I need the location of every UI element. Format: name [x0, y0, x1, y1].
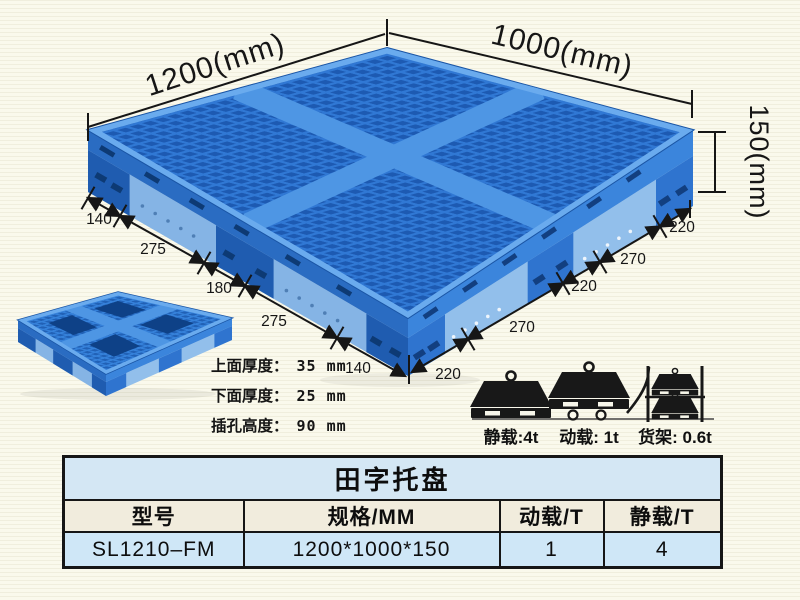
note-top-thickness: 上面厚度：35 mm	[211, 354, 347, 376]
spec-table: 田字托盘 型号 规格/MM 动载/T 静载/T SL1210–FM 1200*1…	[62, 455, 723, 569]
dim-right-5: 220	[669, 219, 695, 236]
spec-table-data-row: SL1210–FM 1200*1000*150 1 4	[64, 532, 722, 568]
note-slot-height-value: 90 mm	[297, 417, 347, 435]
note-bottom-thickness-value: 25 mm	[297, 387, 347, 405]
note-top-thickness-value: 35 mm	[297, 357, 347, 375]
note-slot-height-label: 插孔高度：	[211, 418, 289, 435]
pallet-small-illustration	[18, 292, 232, 400]
trolley-load-label: 动载: 1t	[559, 427, 619, 447]
pallet-spec-sheet: 1200(mm) 1000(mm) 150(mm) 140 275 180 27…	[0, 0, 800, 600]
note-bottom-thickness: 下面厚度：25 mm	[211, 384, 347, 406]
dim-right-3: 220	[571, 278, 597, 295]
spec-table-title-row: 田字托盘	[64, 457, 722, 501]
static-load-label: 静载:4t	[484, 427, 539, 447]
cell-model: SL1210–FM	[64, 532, 244, 568]
dim-height-label: 150(mm)	[744, 104, 774, 219]
dim-left-2: 275	[140, 241, 166, 258]
spec-table-title: 田字托盘	[64, 457, 722, 501]
col-header-model: 型号	[64, 500, 244, 532]
col-header-static-load: 静载/T	[604, 500, 722, 532]
cell-static-load: 4	[604, 532, 722, 568]
dim-left-3: 180	[206, 280, 232, 297]
dim-left-1: 140	[86, 211, 112, 228]
dim-right-2: 270	[509, 319, 535, 336]
rack-load-label: 货架: 0.6t	[638, 427, 712, 447]
note-top-thickness-label: 上面厚度：	[211, 358, 289, 375]
spec-table-header-row: 型号 规格/MM 动载/T 静载/T	[64, 500, 722, 532]
dim-height	[698, 132, 726, 192]
pallet-small-deck-top	[18, 292, 232, 374]
col-header-spec: 规格/MM	[244, 500, 500, 532]
load-capacity-icons: 静载:4t 动载: 1t 货架: 0.6t	[470, 363, 714, 448]
static-load-icon	[470, 372, 552, 419]
dim-left-4: 275	[261, 313, 287, 330]
dim-right-4: 270	[620, 251, 646, 268]
dim-right-1: 220	[435, 366, 461, 383]
thickness-notes: 上面厚度：35 mm 下面厚度：25 mm 插孔高度：90 mm	[211, 354, 347, 444]
trolley-load-icon	[548, 363, 649, 420]
rack-load-icon	[645, 366, 705, 422]
dim-left-5: 140	[345, 360, 371, 377]
cell-spec: 1200*1000*150	[244, 532, 500, 568]
note-bottom-thickness-label: 下面厚度：	[211, 388, 289, 405]
col-header-dynamic-load: 动载/T	[500, 500, 604, 532]
pallet-diagram: 1200(mm) 1000(mm) 150(mm) 140 275 180 27…	[0, 0, 800, 455]
note-slot-height: 插孔高度：90 mm	[211, 414, 347, 436]
cell-dynamic-load: 1	[500, 532, 604, 568]
